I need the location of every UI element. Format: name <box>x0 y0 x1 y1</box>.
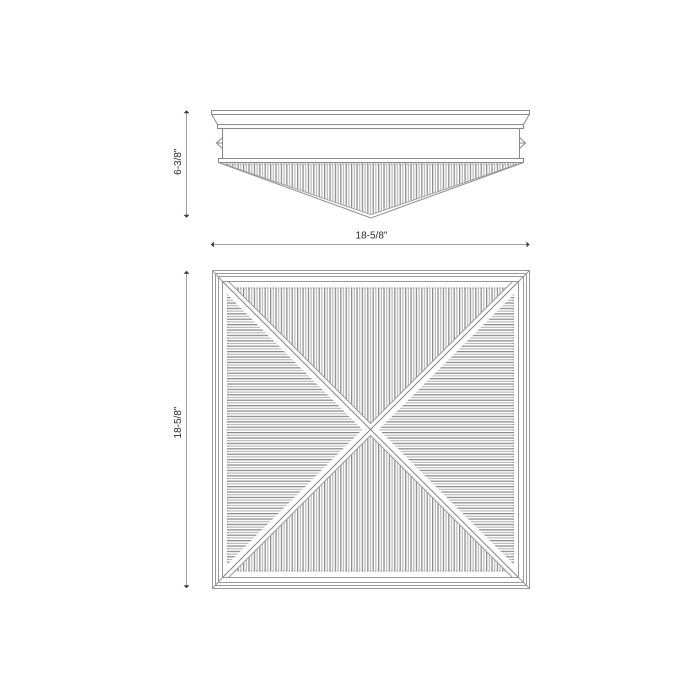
svg-text:6-3/8": 6-3/8" <box>173 148 184 175</box>
svg-text:18-5/8": 18-5/8" <box>173 406 184 438</box>
svg-text:18-5/8": 18-5/8" <box>356 230 388 241</box>
